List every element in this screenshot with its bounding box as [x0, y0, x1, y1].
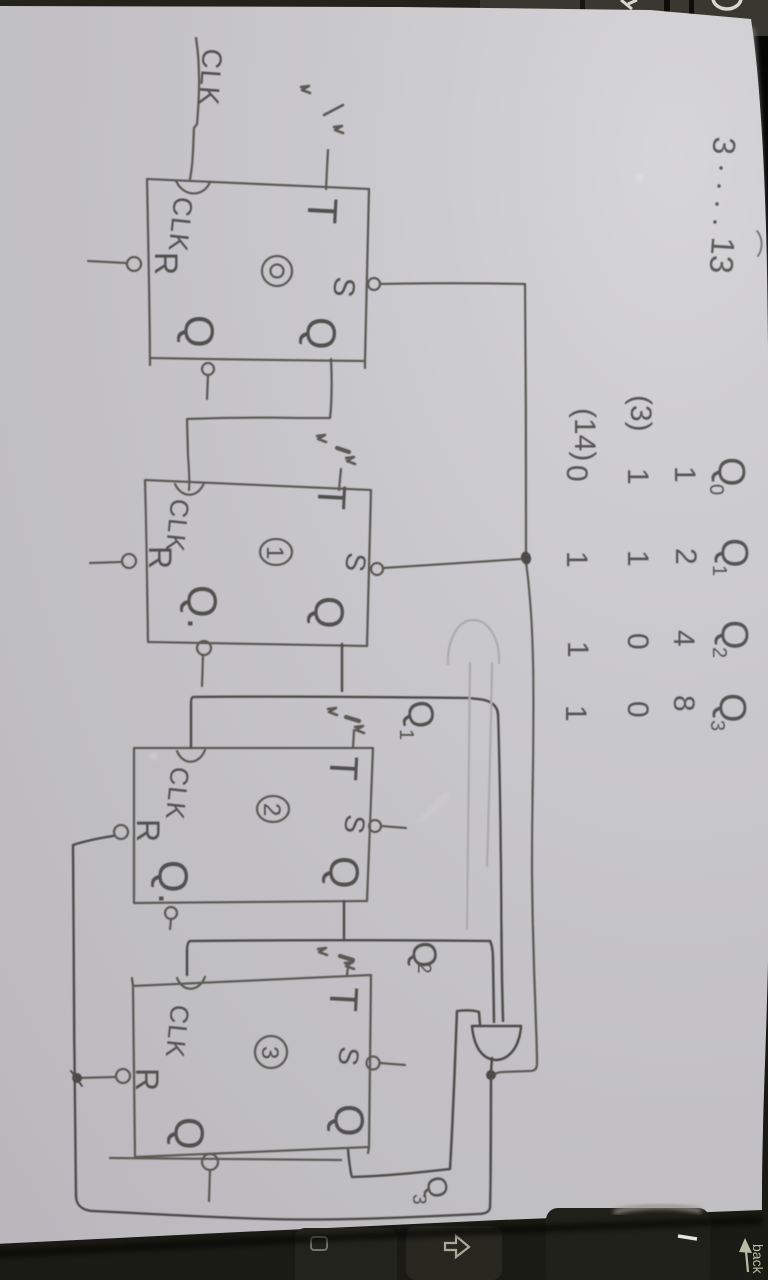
svg-text:2: 2: [413, 963, 434, 974]
svg-text:1: 1: [621, 468, 654, 485]
svg-text:2: 2: [708, 647, 730, 658]
svg-text:Q: Q: [711, 693, 753, 723]
svg-text:0: 0: [560, 465, 593, 482]
svg-text:Q: Q: [166, 1117, 213, 1150]
svg-text:T: T: [308, 484, 353, 511]
svg-text:CLK: CLK: [160, 497, 195, 553]
svg-text:R: R: [130, 819, 166, 842]
svg-text:Q: Q: [176, 315, 223, 348]
svg-text:3: 3: [706, 136, 743, 156]
svg-text:CLK: CLK: [160, 1003, 195, 1059]
svg-text:R: R: [148, 252, 184, 275]
svg-text:13: 13: [703, 236, 742, 275]
svg-text:Q: Q: [321, 856, 368, 889]
svg-text:3: 3: [706, 720, 728, 731]
svg-text:1: 1: [395, 729, 417, 740]
svg-text:0: 0: [705, 484, 727, 495]
svg-text:T: T: [298, 197, 346, 225]
svg-text:Q.: Q.: [179, 585, 226, 629]
svg-text:Q: Q: [298, 317, 345, 350]
svg-text:Q: Q: [710, 457, 752, 487]
svg-text:3: 3: [256, 1046, 283, 1059]
svg-text:R: R: [129, 1068, 165, 1091]
svg-text:1: 1: [559, 705, 592, 722]
svg-text:Q: Q: [713, 620, 755, 650]
svg-text:Q: Q: [399, 698, 444, 731]
svg-text:0: 0: [621, 701, 654, 718]
svg-text:Q.: Q.: [150, 860, 197, 904]
svg-text:CLK: CLK: [163, 195, 199, 253]
svg-text:T: T: [320, 755, 365, 782]
svg-text:1: 1: [621, 550, 654, 567]
svg-text:8: 8: [667, 695, 700, 712]
svg-text:T: T: [320, 986, 365, 1013]
svg-text:0: 0: [621, 633, 654, 650]
svg-text:1: 1: [560, 551, 593, 568]
svg-text:1: 1: [561, 641, 594, 658]
svg-text:2: 2: [669, 548, 702, 565]
svg-text:1: 1: [261, 546, 288, 559]
svg-text:Q: Q: [326, 1104, 373, 1137]
svg-text:Q: Q: [713, 538, 755, 568]
svg-text:1: 1: [708, 565, 730, 576]
svg-text:(3): (3): [624, 395, 657, 432]
svg-text:4: 4: [667, 630, 700, 647]
svg-text:Q: Q: [306, 596, 353, 629]
svg-text:back: back: [750, 1244, 766, 1275]
svg-text:CLK: CLK: [160, 765, 195, 821]
svg-text:3: 3: [408, 1194, 429, 1205]
svg-text:1: 1: [668, 466, 701, 483]
svg-text:CLK: CLK: [193, 48, 228, 107]
svg-text:(14): (14): [568, 408, 601, 461]
svg-text:2: 2: [258, 803, 285, 816]
